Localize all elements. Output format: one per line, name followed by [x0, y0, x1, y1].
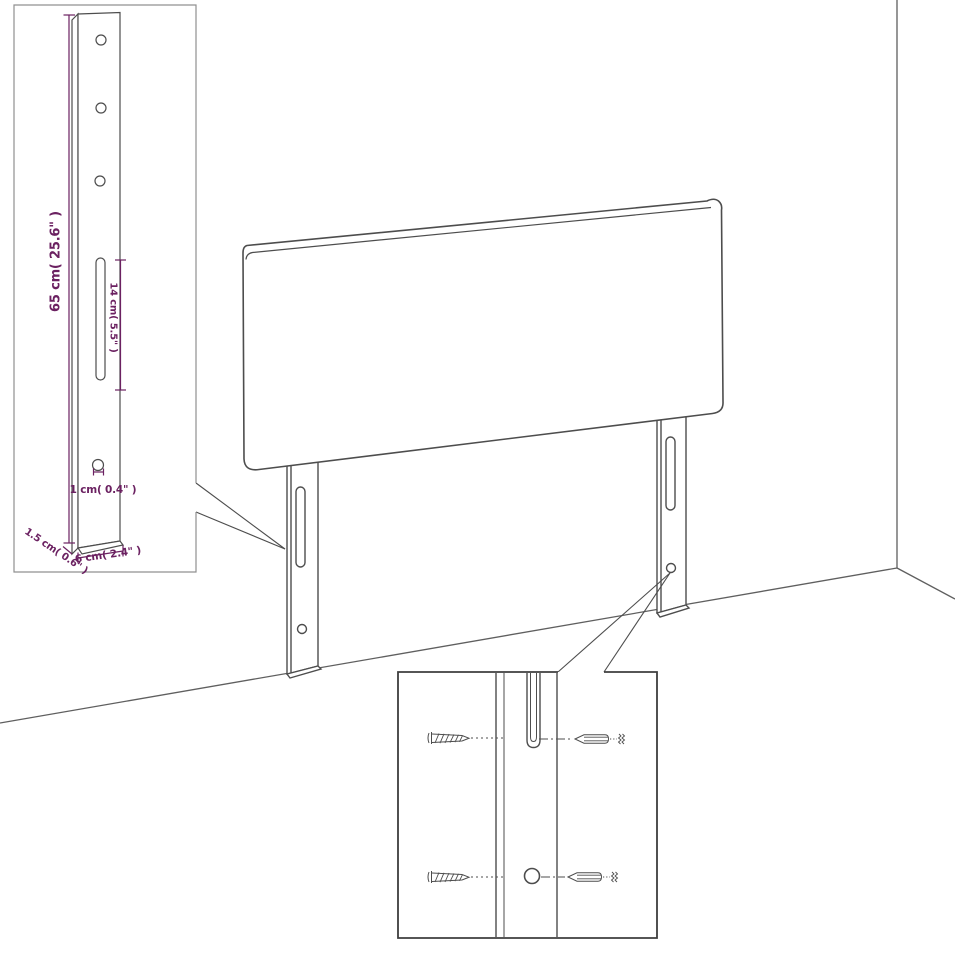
post-hole-lower [95, 176, 105, 186]
dim-label-slot-length: 14 cm( 5.5" ) [108, 268, 119, 368]
strip-hole [525, 869, 540, 884]
dim-label-hole-diameter: 1 cm( 0.4" ) [42, 484, 164, 496]
post-hole-middle [96, 103, 106, 113]
mounting-detail-inset [398, 672, 657, 938]
panel-outline [243, 199, 723, 470]
post-side-face [72, 14, 78, 554]
headboard-left-leg [287, 451, 321, 678]
post-slot [96, 258, 105, 380]
right-leg-hole [667, 564, 676, 573]
post-small-hole [93, 460, 104, 471]
wedge-left-lower-line [196, 512, 285, 549]
product-dimension-diagram: 65 cm( 25.6" ) 14 cm( 5.5" ) 1 cm( 0.4" … [0, 0, 955, 955]
post-hole-top [96, 35, 106, 45]
diagram-svg [0, 0, 955, 955]
wedge-left-upper-line [196, 483, 285, 549]
callout-wedge-left [196, 483, 285, 549]
headboard-panel [243, 199, 723, 470]
dim-label-post-height: 65 cm( 25.6" ) [49, 200, 64, 324]
floor-line-right [897, 568, 955, 599]
left-leg-hole [298, 625, 307, 634]
left-leg-slot [296, 487, 305, 567]
callout-wedge-right [558, 573, 670, 672]
right-leg-slot [666, 437, 675, 510]
